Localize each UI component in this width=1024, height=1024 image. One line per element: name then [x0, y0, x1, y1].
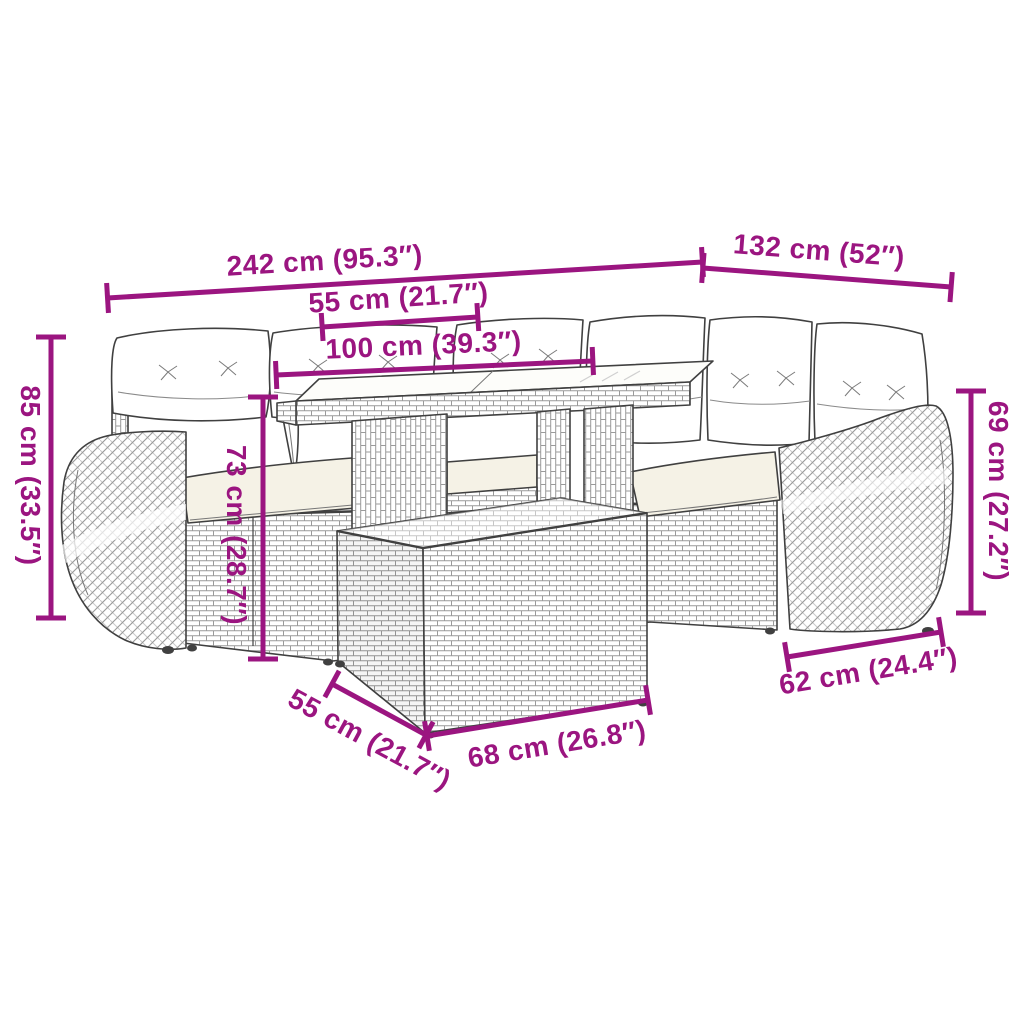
- dim-arm-height-label: 69 cm (27.2″): [983, 401, 1014, 581]
- dim-arm-height: 69 cm (27.2″): [956, 391, 1014, 613]
- foot: [187, 645, 197, 652]
- armrest-left: [62, 431, 186, 654]
- dim-side-depth-label: 62 cm (24.4″): [777, 641, 960, 700]
- dim-overall-depth: 132 cm (52″): [702, 226, 955, 302]
- dim-overall-depth-label: 132 cm (52″): [732, 228, 906, 272]
- diagram-canvas: 242 cm (95.3″) 132 cm (52″) 55 cm (21.7″…: [0, 0, 1024, 1024]
- dim-back-height: 85 cm (33.5″): [15, 337, 66, 618]
- dim-back-height-label: 85 cm (33.5″): [15, 385, 46, 565]
- ottoman: [335, 498, 648, 739]
- dim-overall-width-label: 242 cm (95.3″): [226, 239, 424, 282]
- dim-seat-back-height-label: 73 cm (28.7″): [221, 445, 252, 625]
- foot: [765, 628, 775, 635]
- dimension-diagram: 242 cm (95.3″) 132 cm (52″) 55 cm (21.7″…: [0, 0, 1024, 1024]
- foot: [323, 659, 333, 666]
